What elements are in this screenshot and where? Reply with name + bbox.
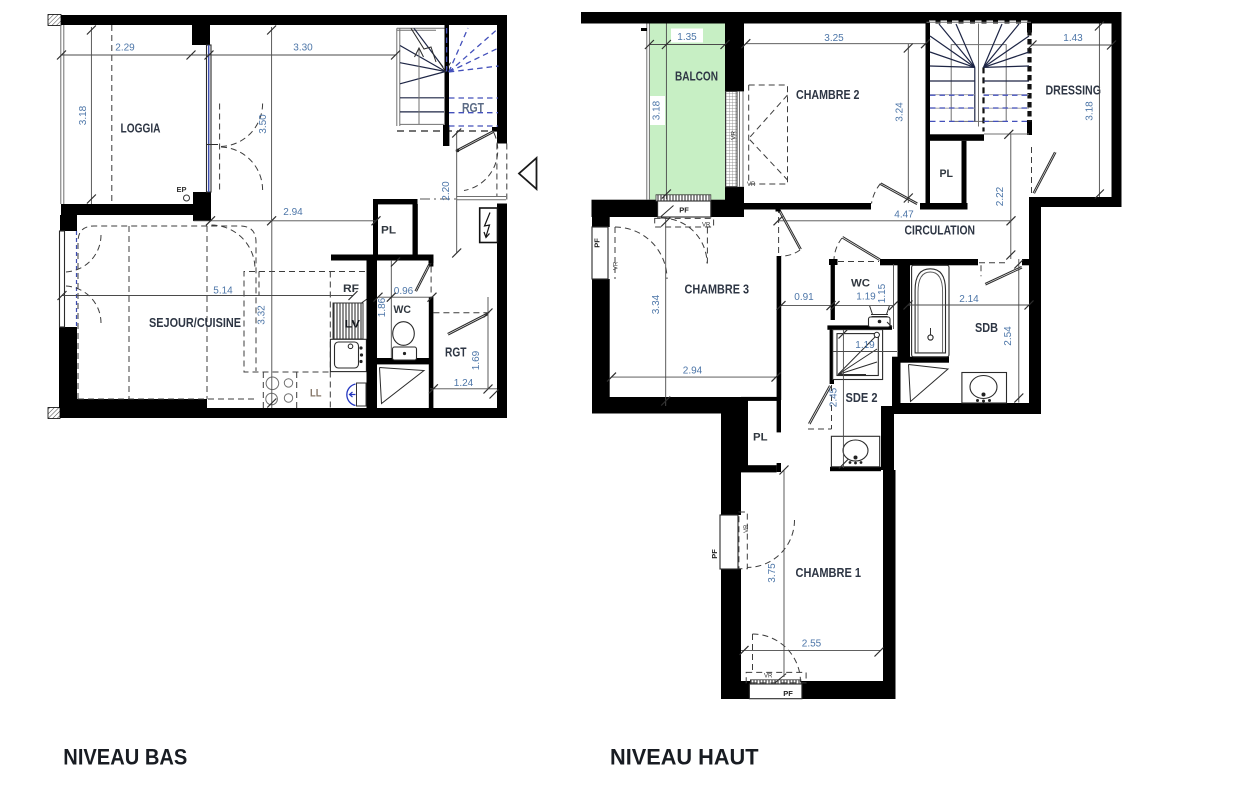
svg-text:SDB: SDB xyxy=(975,320,998,335)
svg-text:PL: PL xyxy=(940,168,954,180)
svg-text:3.24: 3.24 xyxy=(895,102,906,122)
svg-text:1.24: 1.24 xyxy=(454,378,474,389)
svg-text:2.22: 2.22 xyxy=(995,186,1006,206)
svg-text:VR: VR xyxy=(747,182,756,188)
svg-text:LV: LV xyxy=(345,319,361,331)
svg-text:3.18: 3.18 xyxy=(652,100,663,120)
svg-text:2.94: 2.94 xyxy=(283,207,303,218)
svg-text:1.35: 1.35 xyxy=(677,32,697,43)
svg-text:2.55: 2.55 xyxy=(802,639,822,650)
svg-text:PF: PF xyxy=(679,206,689,215)
svg-text:2.14: 2.14 xyxy=(959,294,979,305)
svg-text:CHAMBRE 3: CHAMBRE 3 xyxy=(685,282,750,297)
svg-text:PL: PL xyxy=(381,225,396,237)
svg-text:PF: PF xyxy=(710,549,719,559)
svg-text:VR: VR xyxy=(614,261,620,270)
svg-text:3.18: 3.18 xyxy=(1085,101,1096,121)
svg-text:3.75: 3.75 xyxy=(767,563,778,583)
svg-text:2.45: 2.45 xyxy=(829,387,840,407)
svg-text:LL: LL xyxy=(310,388,322,400)
svg-text:SEJOUR/CUISINE: SEJOUR/CUISINE xyxy=(149,315,241,330)
svg-text:SDE 2: SDE 2 xyxy=(846,390,878,405)
svg-text:VR: VR xyxy=(764,674,773,680)
svg-text:0.91: 0.91 xyxy=(794,292,814,303)
svg-text:2.94: 2.94 xyxy=(683,366,703,377)
svg-text:NIVEAU HAUT: NIVEAU HAUT xyxy=(610,745,759,770)
svg-text:1.15: 1.15 xyxy=(877,283,888,303)
svg-text:PF: PF xyxy=(783,689,793,698)
svg-text:BALCON: BALCON xyxy=(675,69,718,84)
svg-text:2.20: 2.20 xyxy=(441,181,452,201)
svg-text:LOGGIA: LOGGIA xyxy=(121,121,161,136)
svg-text:RGT: RGT xyxy=(445,345,467,360)
svg-text:RGT: RGT xyxy=(462,100,484,115)
svg-text:1.43: 1.43 xyxy=(1063,33,1083,44)
svg-text:2.54: 2.54 xyxy=(1003,326,1014,346)
svg-text:3.25: 3.25 xyxy=(824,33,844,44)
svg-text:CHAMBRE 2: CHAMBRE 2 xyxy=(796,87,860,102)
svg-text:WC: WC xyxy=(851,278,870,290)
svg-text:3.30: 3.30 xyxy=(293,43,313,54)
svg-text:3.34: 3.34 xyxy=(651,294,662,314)
svg-text:NIVEAU BAS: NIVEAU BAS xyxy=(63,745,187,770)
svg-text:WC: WC xyxy=(394,304,412,316)
svg-text:VR: VR xyxy=(702,223,711,229)
svg-text:VR: VR xyxy=(731,131,738,140)
svg-text:1.19: 1.19 xyxy=(856,292,876,303)
svg-text:4.47: 4.47 xyxy=(894,210,914,221)
svg-text:1.69: 1.69 xyxy=(471,350,482,370)
svg-text:0.96: 0.96 xyxy=(394,286,414,297)
svg-text:5.14: 5.14 xyxy=(213,286,233,297)
svg-text:VR: VR xyxy=(744,524,750,533)
svg-text:EP: EP xyxy=(176,185,186,194)
svg-text:1.86: 1.86 xyxy=(377,297,388,317)
svg-text:PL: PL xyxy=(753,432,768,444)
svg-text:2.29: 2.29 xyxy=(115,43,135,54)
svg-text:3.18: 3.18 xyxy=(78,105,89,125)
svg-text:CIRCULATION: CIRCULATION xyxy=(905,223,976,238)
svg-text:1.19: 1.19 xyxy=(855,340,875,351)
svg-text:RF: RF xyxy=(343,283,359,295)
svg-text:CHAMBRE 1: CHAMBRE 1 xyxy=(796,565,862,580)
svg-text:3.32: 3.32 xyxy=(257,305,268,325)
svg-text:PF: PF xyxy=(593,238,602,248)
svg-text:DRESSING: DRESSING xyxy=(1046,83,1102,98)
svg-text:3.50: 3.50 xyxy=(258,114,269,134)
